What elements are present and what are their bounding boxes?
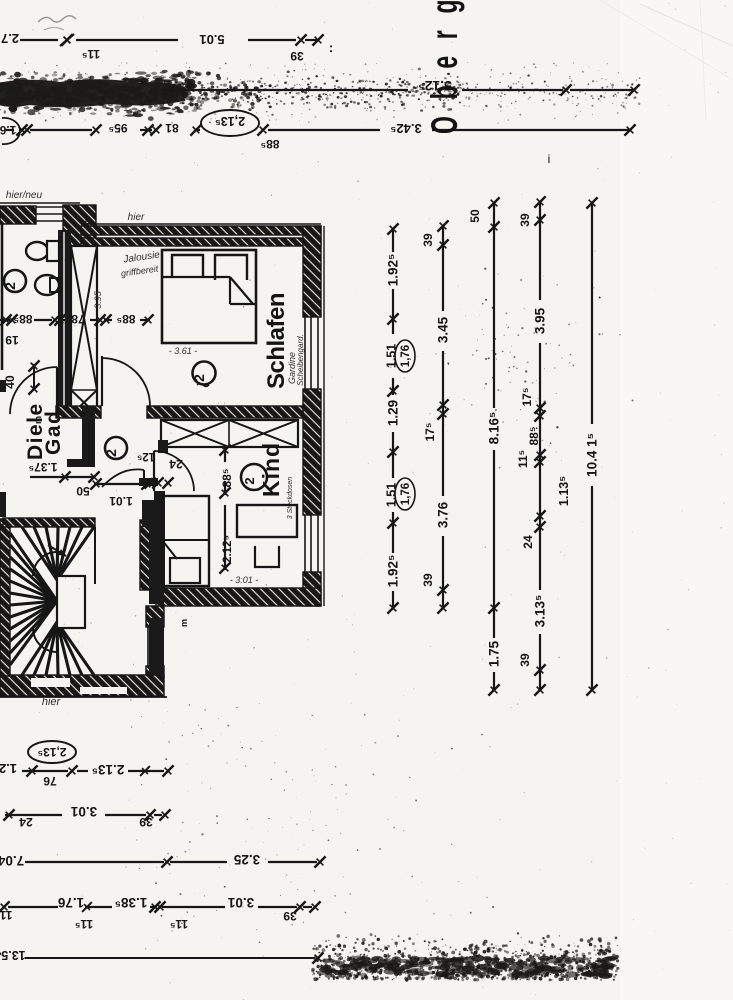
svg-text:78: 78: [71, 312, 85, 326]
svg-text:11⁵: 11⁵: [82, 47, 100, 61]
svg-text:39: 39: [290, 49, 304, 63]
svg-text:39: 39: [518, 653, 532, 667]
svg-text:1.13⁵: 1.13⁵: [557, 476, 571, 506]
svg-text:m: m: [33, 416, 43, 424]
svg-text:1.37⁵: 1.37⁵: [29, 460, 58, 474]
svg-text:88⁵: 88⁵: [527, 427, 541, 446]
svg-text:Oberg: Oberg: [423, 0, 465, 134]
svg-text:39: 39: [421, 573, 435, 587]
svg-text:2.7: 2.7: [1, 31, 19, 46]
svg-text:2: 2: [103, 449, 119, 457]
svg-text:1,76: 1,76: [400, 483, 412, 505]
svg-text:m: m: [179, 619, 189, 627]
svg-text:hier: hier: [42, 696, 62, 708]
svg-text:1.01: 1.01: [109, 494, 133, 508]
svg-text:m: m: [82, 217, 92, 225]
svg-text:13.54: 13.54: [0, 948, 26, 962]
svg-text:3 Steckdosen: 3 Steckdosen: [287, 477, 294, 520]
svg-text:88⁵: 88⁵: [14, 312, 33, 326]
svg-text:2,13⁵: 2,13⁵: [38, 745, 67, 759]
svg-text:11⁵: 11⁵: [516, 450, 530, 468]
svg-text:10.4 1⁵: 10.4 1⁵: [585, 433, 600, 477]
svg-text:1.29: 1.29: [386, 400, 401, 426]
svg-text:11⁵: 11⁵: [170, 917, 188, 931]
svg-text:3.25: 3.25: [233, 852, 260, 867]
svg-text:3.76: 3.76: [436, 501, 451, 528]
svg-text:50: 50: [468, 209, 482, 223]
svg-text:50: 50: [76, 484, 90, 498]
svg-text:hier/neu: hier/neu: [6, 190, 43, 201]
svg-text:hier: hier: [128, 212, 145, 223]
svg-text:2: 2: [2, 282, 18, 290]
svg-text:39: 39: [518, 213, 532, 227]
svg-text:1,76: 1,76: [400, 345, 412, 367]
svg-text:11: 11: [0, 908, 12, 922]
svg-text:- 3.01 -: - 3.01 -: [230, 575, 259, 585]
svg-text:Scheibengard.: Scheibengard.: [296, 334, 305, 386]
svg-text:3.95: 3.95: [533, 307, 548, 334]
svg-text:1.92⁵: 1.92⁵: [386, 555, 401, 588]
svg-text:- 3.61 -: - 3.61 -: [169, 346, 198, 356]
svg-text:3.42⁵: 3.42⁵: [390, 121, 421, 136]
svg-text:3.01: 3.01: [70, 804, 97, 819]
svg-text:1.2: 1.2: [0, 761, 17, 776]
svg-text:40: 40: [3, 375, 17, 389]
svg-text:88⁵: 88⁵: [261, 137, 280, 151]
svg-text:2: 2: [191, 374, 207, 382]
svg-text:3.95: 3.95: [93, 290, 103, 309]
svg-text:7.04: 7.04: [0, 853, 24, 868]
svg-text:Gad: Gad: [42, 410, 65, 455]
svg-text:Schlafen: Schlafen: [263, 293, 290, 389]
svg-text:11⁵: 11⁵: [75, 917, 93, 931]
svg-text:24: 24: [169, 457, 183, 471]
svg-text:88⁵: 88⁵: [117, 312, 136, 326]
svg-text:12⁵: 12⁵: [137, 450, 155, 462]
svg-text:3.13⁵: 3.13⁵: [533, 595, 548, 628]
svg-text:1.75: 1.75: [487, 640, 502, 667]
svg-text:39: 39: [283, 909, 297, 923]
svg-text:3.45: 3.45: [436, 316, 451, 343]
svg-text:19: 19: [5, 333, 19, 347]
svg-text:8.16⁵: 8.16⁵: [487, 412, 502, 445]
svg-text:2: 2: [242, 477, 257, 484]
svg-text:i: i: [548, 152, 551, 166]
svg-text:17⁵: 17⁵: [423, 423, 437, 442]
svg-text:1.38⁵: 1.38⁵: [115, 895, 148, 910]
svg-text:1.92⁵: 1.92⁵: [386, 254, 401, 287]
svg-text:24: 24: [19, 815, 33, 829]
svg-text:3.01: 3.01: [227, 895, 254, 910]
svg-text:39: 39: [139, 815, 153, 829]
svg-text::: :: [329, 40, 333, 55]
svg-text:88⁵: 88⁵: [220, 469, 234, 488]
svg-text:2.13⁵: 2.13⁵: [92, 762, 125, 777]
svg-text:2.12⁵: 2.12⁵: [222, 535, 234, 563]
svg-text:76: 76: [43, 774, 57, 788]
svg-text:24: 24: [521, 535, 535, 549]
svg-text:1.6: 1.6: [0, 123, 16, 137]
svg-text:1.76: 1.76: [57, 895, 84, 910]
svg-text:95⁵: 95⁵: [109, 121, 128, 135]
svg-text:5.01: 5.01: [199, 32, 224, 47]
svg-text:39: 39: [421, 233, 435, 247]
